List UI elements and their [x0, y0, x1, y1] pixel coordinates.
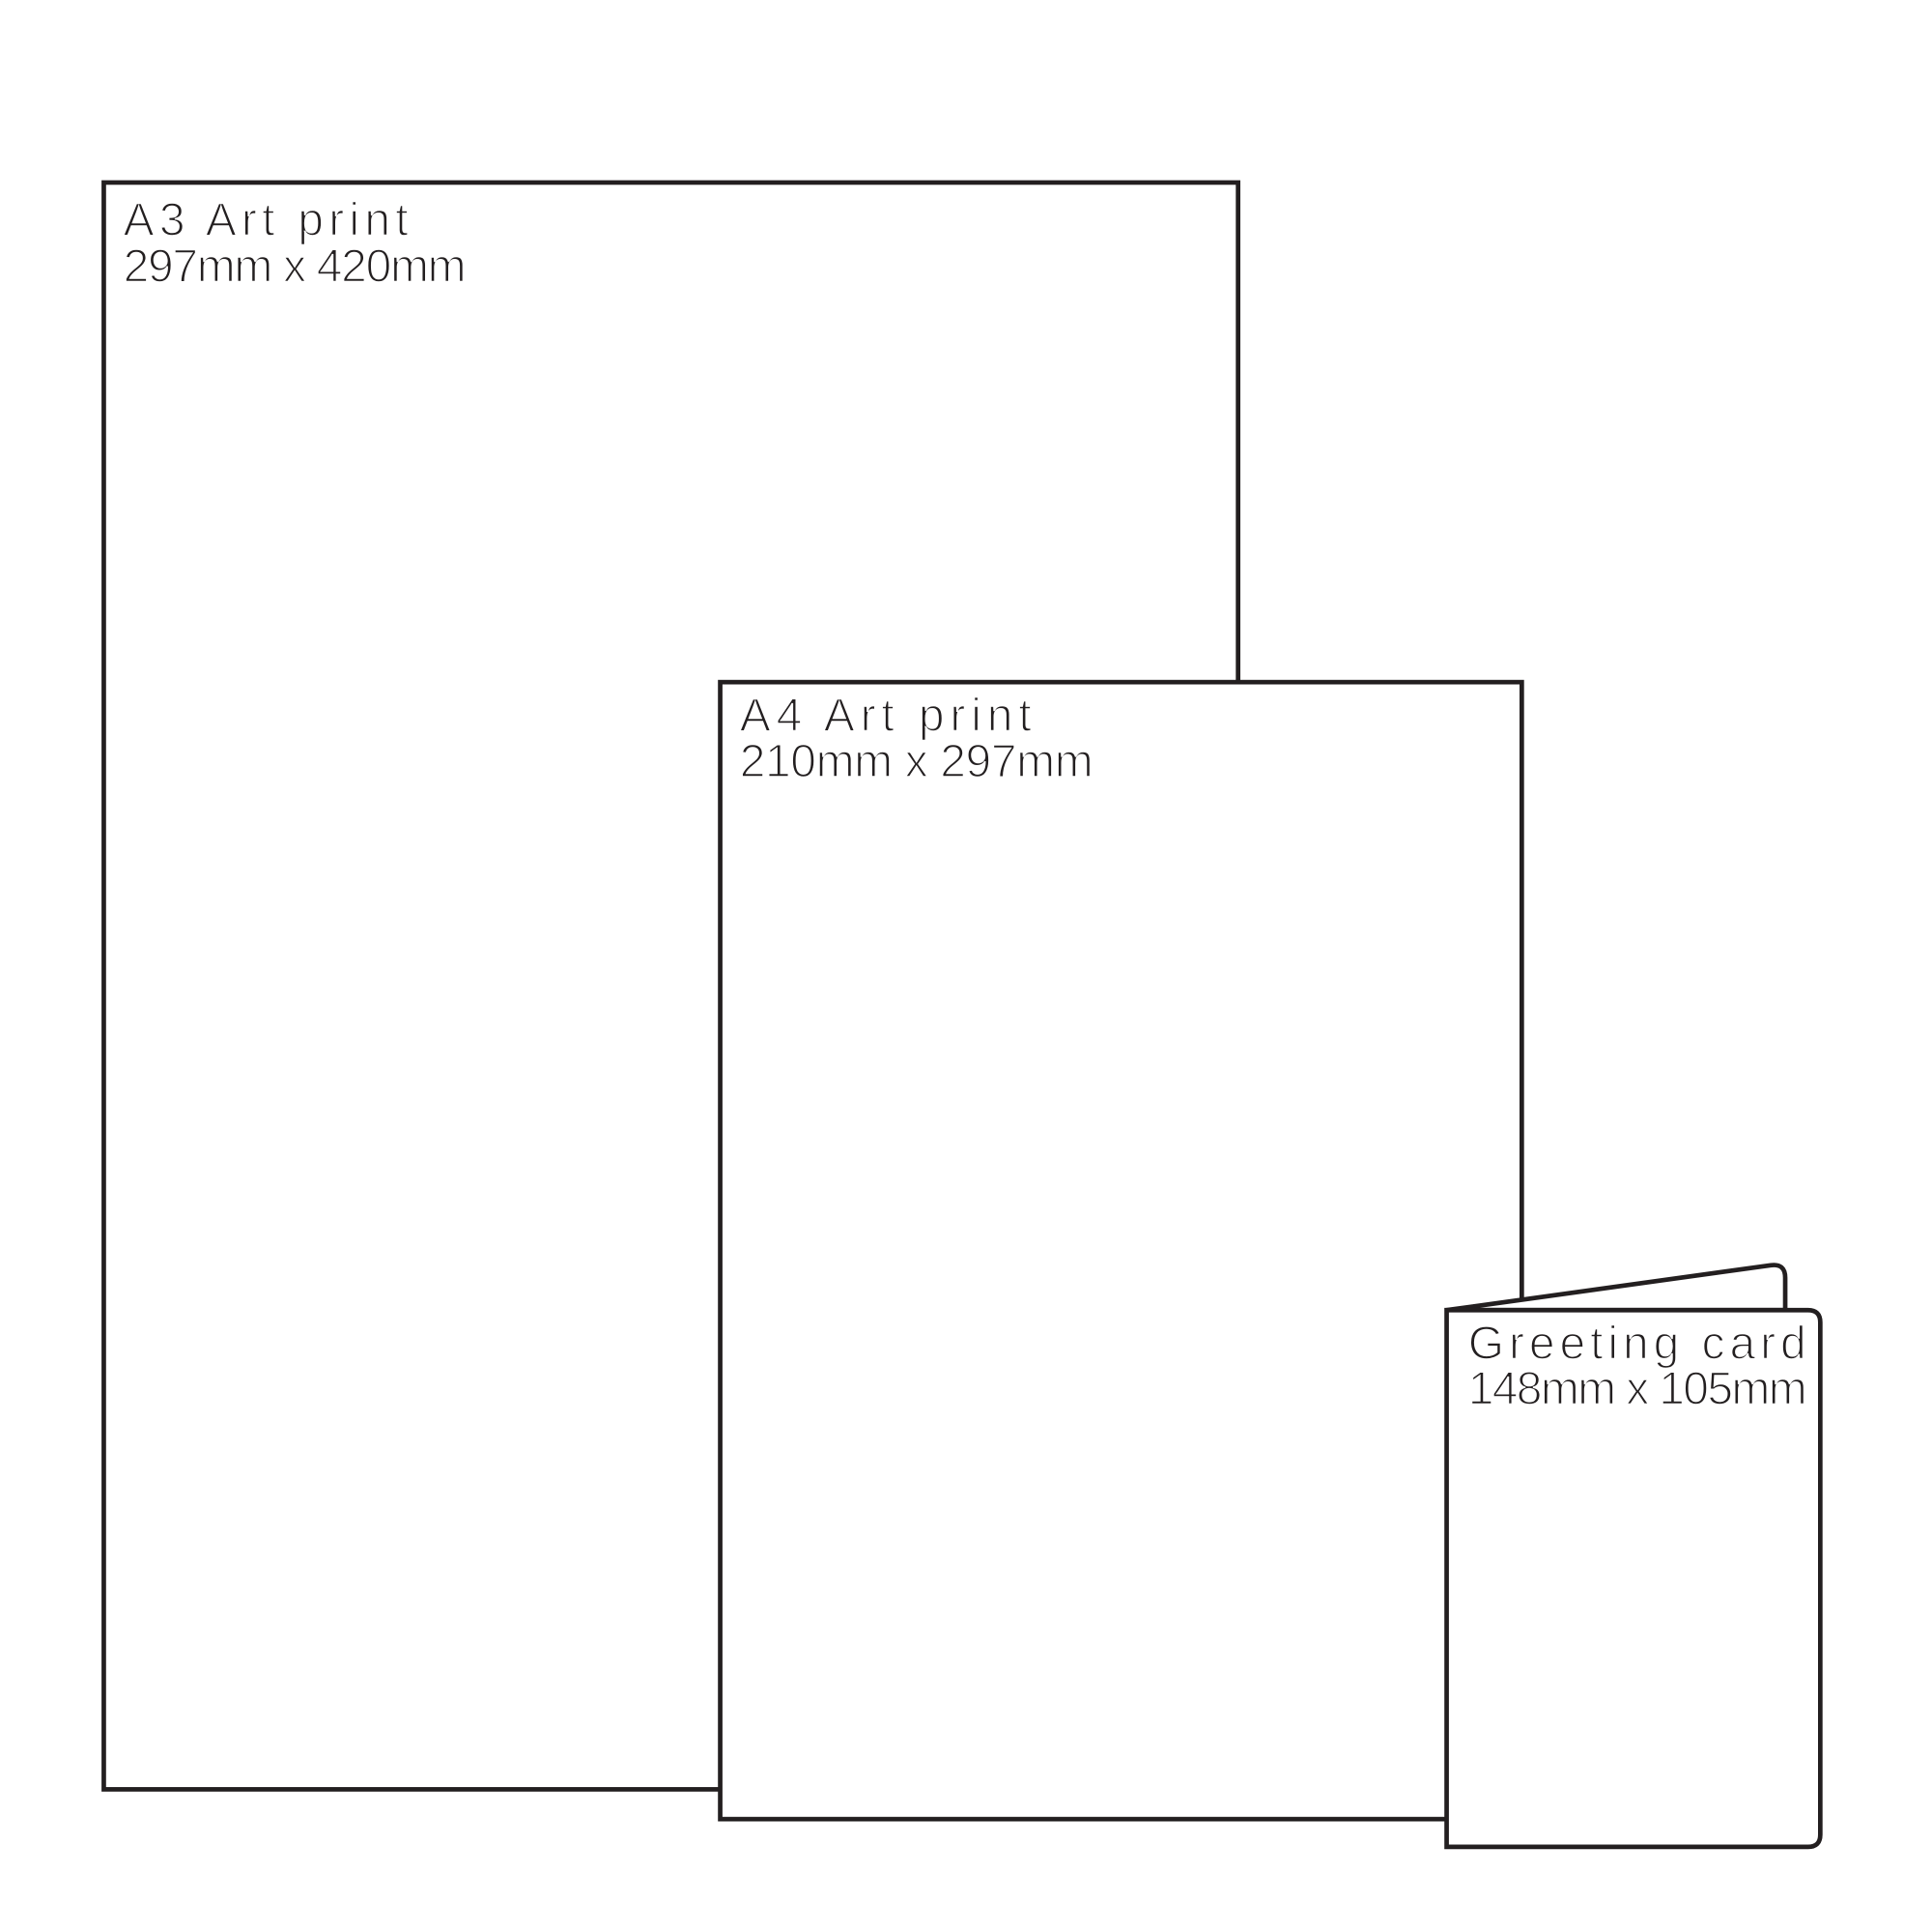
svg-text:A4 Art print: A4 Art print: [740, 691, 1032, 742]
svg-text:210mm x 297mm: 210mm x 297mm: [740, 736, 1094, 787]
svg-text:A3 Art print: A3 Art print: [124, 195, 409, 246]
svg-text:148mm x 105mm: 148mm x 105mm: [1468, 1364, 1807, 1415]
svg-text:297mm x 420mm: 297mm x 420mm: [124, 241, 467, 292]
